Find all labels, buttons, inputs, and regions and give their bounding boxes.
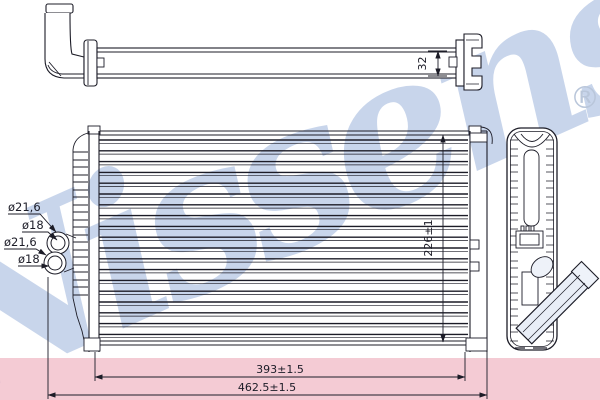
top-view-core-bar bbox=[97, 48, 457, 78]
top-view-elbow-pipe bbox=[45, 4, 84, 78]
dim-393-label: 393±1.5 bbox=[256, 363, 304, 376]
technical-drawing-page: Nissens ® bbox=[0, 0, 600, 400]
dim-226-label: 226±1 bbox=[422, 219, 435, 256]
port-label-4: ø18 bbox=[18, 252, 40, 266]
registered-trademark-icon: ® bbox=[570, 81, 600, 116]
dim-32-label: 32 bbox=[416, 57, 429, 71]
top-view-left-flange bbox=[84, 40, 97, 86]
port-label-2: ø18 bbox=[22, 218, 44, 232]
port-label-1: ø21,6 bbox=[8, 200, 41, 214]
port-label-3: ø21,6 bbox=[4, 235, 37, 249]
dim-462-label: 462.5±1.5 bbox=[238, 381, 296, 394]
